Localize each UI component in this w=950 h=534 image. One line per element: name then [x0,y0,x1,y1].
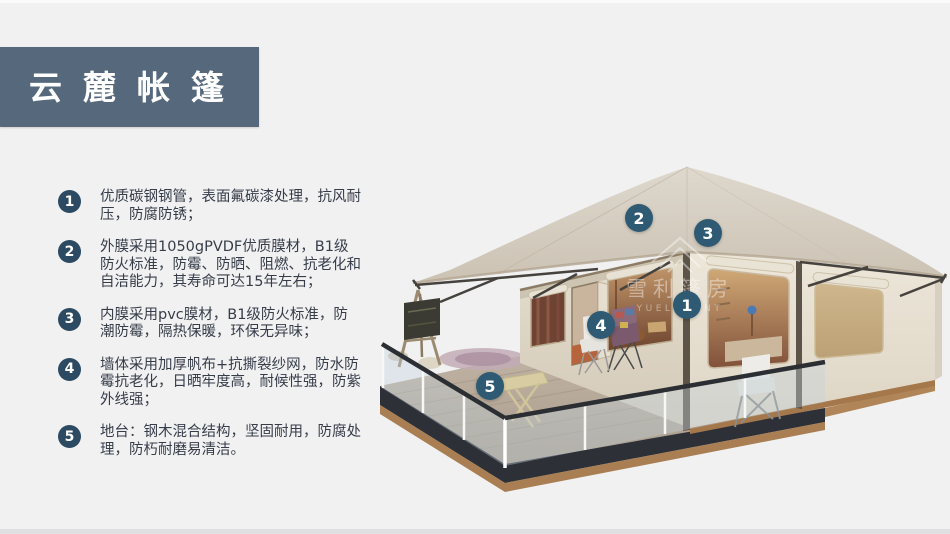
top-edge-strip [0,0,950,3]
side-window-flap [813,272,890,358]
callout-badge-5: 5 [476,372,504,400]
list-bullet-1: 1 [58,190,81,213]
feature-list: 1 优质碳钢钢管，表面氟碳漆处理，抗风耐压，防腐防锈； 2 外膜采用1050gP… [58,189,376,474]
tent-illustration: 雪利篷房 YUELI TENT [380,150,950,534]
tent-render: 雪利篷房 YUELI TENT [380,150,950,534]
feature-text-5: 地台：钢木混合结构，坚固耐用，防腐处理，防朽耐磨易清洁。 [100,424,362,459]
list-item: 4 墙体采用加厚帆布+抗撕裂纱网，防水防霉抗老化，日晒牢度高，耐候性强，防紫外线… [58,357,376,410]
feature-text-1: 优质碳钢钢管，表面氟碳漆处理，抗风耐压，防腐防锈； [100,189,362,224]
list-bullet-5: 5 [58,425,81,448]
bottom-edge-strip [0,529,950,534]
title-band: 云麓帐篷 [0,47,259,127]
list-item: 5 地台：钢木混合结构，坚固耐用，防腐处理，防朽耐磨易清洁。 [58,424,376,459]
list-bullet-4: 4 [58,358,81,381]
callout-badge-4: 4 [587,311,615,339]
list-bullet-2: 2 [58,240,81,263]
callout-badge-1: 1 [673,291,701,319]
feature-text-2: 外膜采用1050gPVDF优质膜材，B1级防火标准，防霉、防晒、阻燃、抗老化和自… [100,239,362,292]
list-item: 1 优质碳钢钢管，表面氟碳漆处理，抗风耐压，防腐防锈； [58,189,376,224]
list-item: 2 外膜采用1050gPVDF优质膜材，B1级防火标准，防霉、防晒、阻燃、抗老化… [58,239,376,292]
porch-window-curtain [528,284,569,347]
feature-text-4: 墙体采用加厚帆布+抗撕裂纱网，防水防霉抗老化，日晒牢度高，耐候性强，防紫外线强； [100,357,362,410]
page-title: 云麓帐篷 [29,71,245,104]
callout-badge-2: 2 [625,204,653,232]
slide: 云麓帐篷 1 优质碳钢钢管，表面氟碳漆处理，抗风耐压，防腐防锈； 2 外膜采用1… [0,0,950,534]
list-item: 3 内膜采用pvc膜材，B1级防火标准，防潮防霉，隔热保暖，环保无异味； [58,307,376,342]
list-bullet-3: 3 [58,308,81,331]
callout-badge-3: 3 [694,219,722,247]
feature-text-3: 内膜采用pvc膜材，B1级防火标准，防潮防霉，隔热保暖，环保无异味； [100,307,362,342]
